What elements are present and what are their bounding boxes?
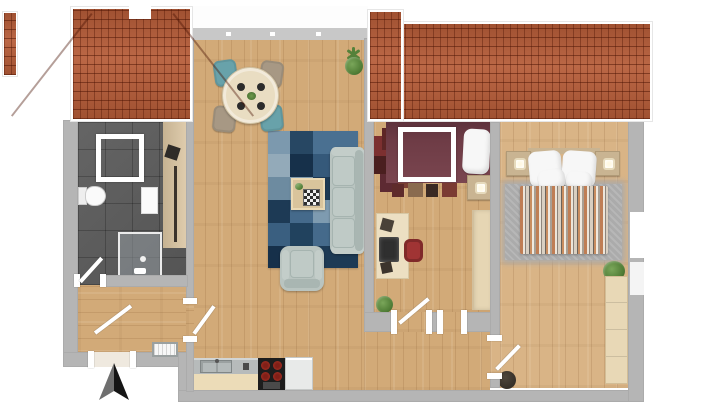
- floor-plan-canvas: [0, 0, 720, 405]
- burner: [261, 372, 270, 381]
- door-jamb: [100, 274, 106, 287]
- plant-foliage: [345, 57, 363, 75]
- outer-wall-left: [63, 120, 78, 367]
- kitchen-appliance: [285, 357, 313, 390]
- door-jamb: [88, 351, 94, 368]
- armchair-armrest: [315, 250, 322, 280]
- roof-top-left: [71, 7, 192, 121]
- wall-shelf: [141, 187, 158, 214]
- dinner-plate: [257, 102, 265, 110]
- roof-top-right: [368, 22, 652, 121]
- sink-basin: [218, 363, 231, 372]
- potted-plant: [343, 47, 365, 81]
- outer-wall-bottom: [178, 390, 644, 402]
- window-handle: [270, 32, 275, 36]
- door-jamb: [437, 310, 443, 334]
- table-plant: [295, 183, 303, 190]
- kitchen-cabinet-front: [190, 374, 258, 390]
- dinner-plate: [257, 83, 265, 91]
- bed-end-item: [426, 184, 438, 197]
- bed-end-item: [392, 184, 404, 197]
- shower-tray: [134, 268, 146, 274]
- stove: [258, 358, 285, 390]
- sofa: [330, 147, 365, 254]
- striped-duvet: [520, 186, 608, 254]
- monitor: [379, 237, 399, 262]
- sofa-cushion: [332, 187, 355, 217]
- glass-shower: [118, 232, 162, 278]
- table-lamp: [603, 158, 615, 170]
- chessboard: [303, 189, 320, 206]
- towel-radiator: [174, 166, 177, 242]
- door-jamb: [487, 373, 502, 379]
- door-jamb: [183, 298, 197, 304]
- window-handle: [226, 32, 231, 36]
- wardrobe: [472, 210, 492, 310]
- roof-dormer-notch: [129, 4, 151, 19]
- neighbor-roof-strip: [3, 12, 17, 76]
- white-bed-frame: [398, 127, 456, 182]
- door-jamb: [183, 336, 197, 342]
- door-jamb: [487, 335, 502, 341]
- bed-end-item: [442, 183, 457, 197]
- burner: [273, 372, 282, 381]
- shower-enclosure: [96, 134, 144, 182]
- sofa-backrest: [355, 150, 363, 251]
- counter-item: [243, 363, 249, 370]
- wall-bathroom-bottom: [103, 275, 188, 287]
- table-lamp: [514, 158, 526, 170]
- bedroom-window: [630, 262, 644, 295]
- door-jamb: [461, 310, 467, 334]
- north-arrow-icon: [95, 362, 133, 402]
- pillow: [462, 128, 491, 174]
- armchair: [280, 246, 324, 291]
- desk-item: [380, 261, 393, 274]
- table-centerpiece: [247, 92, 256, 100]
- door-jamb: [391, 310, 397, 334]
- toilet: [85, 186, 106, 206]
- table-lamp: [475, 182, 487, 194]
- nightstand: [595, 151, 620, 176]
- sofa-cushion: [332, 218, 355, 248]
- roof-top-right-tower: [368, 10, 403, 121]
- balcony-strip: [192, 6, 368, 30]
- coffee-table: [291, 178, 325, 210]
- window-band: [192, 28, 368, 40]
- armchair-seat: [290, 250, 314, 278]
- radiator: [152, 342, 178, 357]
- bed-end-item: [408, 183, 423, 197]
- sink-basin: [203, 363, 216, 372]
- hallway-floor: [364, 332, 490, 390]
- faucet: [215, 359, 219, 363]
- door-jamb: [426, 310, 432, 334]
- burner: [261, 361, 270, 370]
- burner: [273, 361, 282, 370]
- kitchen-sink: [200, 360, 232, 373]
- armchair-backrest: [284, 279, 320, 288]
- shower-drain: [140, 256, 146, 262]
- dresser: [605, 276, 628, 384]
- oven-front: [263, 382, 280, 389]
- bedroom-window: [630, 212, 644, 258]
- wall-small-bedroom-bottom: [364, 312, 500, 332]
- window-handle: [316, 32, 321, 36]
- passage-opening: [442, 312, 463, 332]
- sofa-cushion: [332, 156, 355, 186]
- nightstand: [506, 151, 531, 176]
- dinner-plate: [237, 83, 245, 91]
- armchair-armrest: [282, 250, 289, 280]
- office-chair: [404, 239, 423, 262]
- outer-wall-right: [628, 120, 644, 402]
- roof-hip-line: [11, 13, 93, 117]
